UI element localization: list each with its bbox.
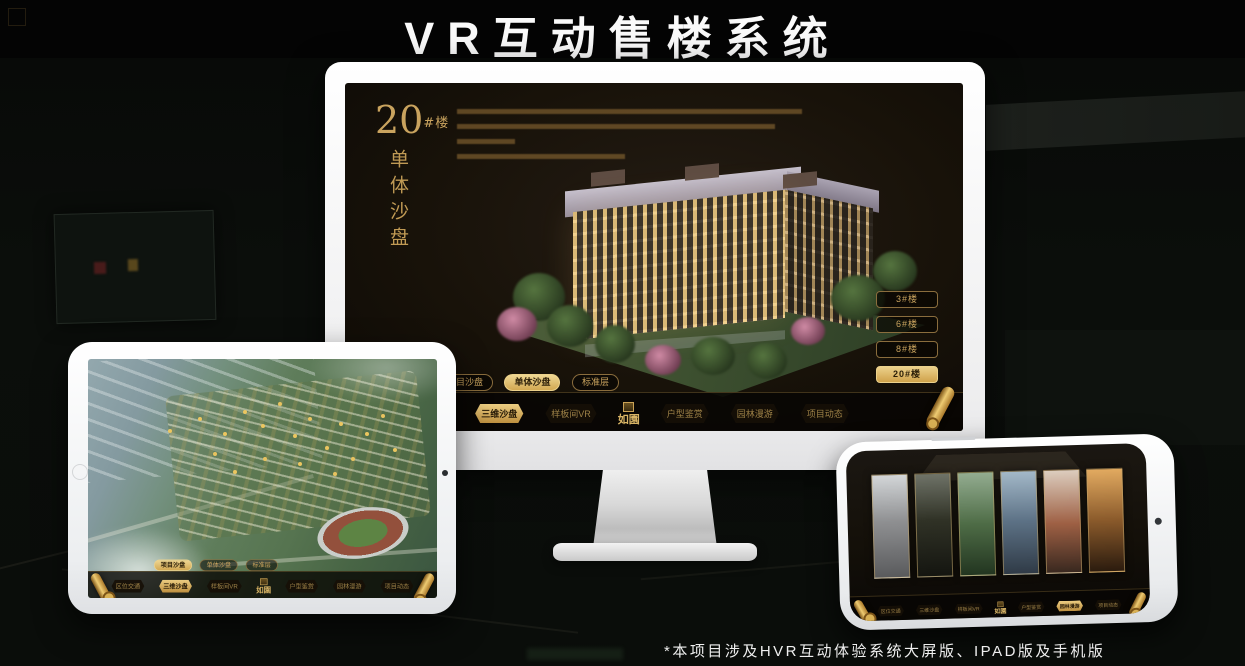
plaque-seal-red <box>94 262 106 274</box>
model-roof-cap <box>591 169 625 187</box>
footnote-text: *本项目涉及HVR互动体验系统大屏版、IPAD版及手机版 <box>664 640 1105 661</box>
model-facade-front <box>573 190 785 340</box>
brand-logo: 如園 <box>994 601 1006 614</box>
nav-3d-sandtable[interactable]: 三维沙盘 <box>914 604 945 615</box>
poster-stage: VR互动售楼系统 20#楼 单体沙盘 <box>0 0 1245 666</box>
model-tree <box>691 337 735 375</box>
model-flower-bush <box>645 345 681 375</box>
nav-floorplan-gallery[interactable]: 户型鉴赏 <box>1016 601 1047 612</box>
background-developer-logo <box>527 648 623 660</box>
nav-showroom-vr[interactable]: 样板间VR <box>204 580 244 593</box>
nav-3d-sandtable[interactable]: 三维沙盘 <box>471 404 527 423</box>
model-tree <box>595 325 635 363</box>
nav-location-traffic[interactable]: 区位交通 <box>875 605 906 616</box>
phone-screen: 区位交通 三维沙盘 样板间VR 如園 户型鉴赏 园林漫游 项目动态 <box>846 443 1151 621</box>
model-tree <box>873 251 917 291</box>
gallery-panel-garden[interactable] <box>957 471 996 576</box>
ipad-bottom-bar: 区位交通 三维沙盘 样板间VR 如園 户型鉴赏 园林漫游 项目动态 <box>88 571 437 598</box>
building-3d-model[interactable] <box>495 155 925 405</box>
ipad-nav: 区位交通 三维沙盘 样板间VR 如園 户型鉴赏 园林漫游 项目动态 <box>88 578 437 594</box>
nav-floorplan-gallery[interactable]: 户型鉴赏 <box>283 580 321 593</box>
paragraph-line <box>457 139 515 144</box>
monitor-stand-base <box>553 543 757 561</box>
gallery-panels <box>846 467 1149 579</box>
nav-garden-roam[interactable]: 园林漫游 <box>727 404 783 423</box>
building-number-heading: 20#楼 <box>375 101 449 143</box>
background-plaque <box>54 210 217 324</box>
phone-nav: 区位交通 三维沙盘 样板间VR 如園 户型鉴赏 园林漫游 项目动态 <box>850 597 1149 618</box>
gallery-panel-building[interactable] <box>1000 470 1039 575</box>
building-button-6[interactable]: 6#楼 <box>876 316 938 333</box>
phone-bottom-bar: 区位交通 三维沙盘 样板间VR 如園 户型鉴赏 园林漫游 项目动态 <box>850 588 1151 621</box>
nav-showroom-vr[interactable]: 样板间VR <box>541 404 601 423</box>
phone-side-button <box>931 437 975 441</box>
background-panel-river <box>986 63 1245 335</box>
scroll-handle-icon[interactable] <box>924 385 956 430</box>
nav-floorplan-gallery[interactable]: 户型鉴赏 <box>657 404 713 423</box>
tab-project-sandtable[interactable]: 项目沙盘 <box>154 559 192 571</box>
gallery-panel-clubhouse[interactable] <box>914 473 953 578</box>
nav-project-news[interactable]: 项目动态 <box>378 580 416 593</box>
gallery-panel-interior[interactable] <box>1086 468 1125 573</box>
nav-garden-roam[interactable]: 园林漫游 <box>330 580 368 593</box>
model-tree <box>547 305 593 347</box>
nav-3d-sandtable[interactable]: 三维沙盘 <box>156 580 194 593</box>
ipad-subtabs: 项目沙盘 单体沙盘 标准层 <box>154 558 437 571</box>
tab-standard-floor[interactable]: 标准层 <box>572 374 619 391</box>
page-title: VR互动售楼系统 <box>0 2 1245 67</box>
ipad-camera <box>442 470 448 476</box>
monitor-subtabs: 项目沙盘 单体沙盘 标准层 <box>437 372 626 391</box>
nav-location-traffic[interactable]: 区位交通 <box>109 580 147 593</box>
background-band <box>986 91 1245 151</box>
model-flower-bush <box>791 317 825 345</box>
nav-garden-roam[interactable]: 园林漫游 <box>1054 600 1085 611</box>
brand-logo: 如園 <box>618 402 640 425</box>
building-button-20[interactable]: 20#楼 <box>876 366 938 383</box>
ipad-device: 项目沙盘 单体沙盘 标准层 区位交通 三维沙盘 样板间VR 如園 户型鉴赏 园林… <box>68 342 456 614</box>
building-number-suffix: #楼 <box>423 116 449 131</box>
background-panel-right <box>1005 330 1245 445</box>
phone-camera <box>1155 518 1162 525</box>
nav-project-news[interactable]: 项目动态 <box>797 404 853 423</box>
ipad-home-button[interactable] <box>72 464 88 480</box>
phone-device: 区位交通 三维沙盘 样板间VR 如園 户型鉴赏 园林漫游 项目动态 <box>835 433 1178 630</box>
building-button-8[interactable]: 8#楼 <box>876 341 938 358</box>
tab-standard-floor[interactable]: 标准层 <box>246 559 278 571</box>
page-subtitle-vertical: 单体沙盘 <box>385 149 412 253</box>
building-markers[interactable] <box>198 417 202 421</box>
building-number: 20 <box>375 98 423 142</box>
building-selector: 3#楼 6#楼 8#楼 20#楼 <box>876 291 938 391</box>
plaque-seal-gold <box>128 259 138 271</box>
tab-single-sandtable[interactable]: 单体沙盘 <box>504 374 560 391</box>
building-button-3[interactable]: 3#楼 <box>876 291 938 308</box>
model-flower-bush <box>497 307 537 341</box>
nav-showroom-vr[interactable]: 样板间VR <box>952 603 985 614</box>
tab-single-sandtable[interactable]: 单体沙盘 <box>200 559 238 571</box>
model-tree <box>747 343 787 379</box>
gallery-panel-courtyard[interactable] <box>871 474 910 579</box>
ipad-screen: 项目沙盘 单体沙盘 标准层 区位交通 三维沙盘 样板间VR 如園 户型鉴赏 园林… <box>88 359 437 598</box>
gallery-panel-autumn[interactable] <box>1043 469 1082 574</box>
paragraph-line <box>457 109 802 114</box>
nav-project-news[interactable]: 项目动态 <box>1093 599 1124 610</box>
brand-logo: 如園 <box>256 578 271 594</box>
paragraph-line <box>457 124 775 129</box>
monitor-stand-neck <box>593 470 717 548</box>
